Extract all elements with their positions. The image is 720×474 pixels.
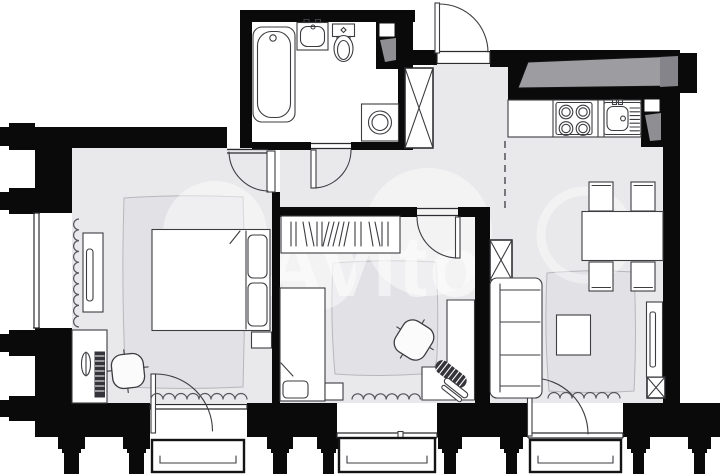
bed-double <box>152 230 270 331</box>
tv-unit <box>83 233 103 312</box>
entry-door <box>435 3 490 64</box>
door-swing-arc <box>440 4 489 52</box>
desk <box>72 330 107 403</box>
living-shaft <box>490 240 512 280</box>
column <box>500 437 523 474</box>
bathtub-icon <box>253 27 295 122</box>
balcony-1 <box>152 440 244 472</box>
pillow <box>248 235 267 278</box>
balcony-3 <box>530 440 621 472</box>
balcony-slab <box>152 440 244 472</box>
dining-chair <box>589 262 613 291</box>
door-frame <box>311 144 351 149</box>
kitchen-shaft-hatch <box>644 99 660 112</box>
pilaster <box>0 330 35 356</box>
toilet-icon <box>333 24 355 62</box>
tv-stand <box>647 302 663 377</box>
pilaster <box>0 396 35 421</box>
column <box>317 437 340 474</box>
column <box>688 437 711 474</box>
dining-chair <box>631 262 655 291</box>
drainboard-lines <box>630 108 640 131</box>
beam-end-cap <box>660 56 678 87</box>
balcony-2 <box>339 438 435 472</box>
wall-entry-jamb <box>413 50 437 65</box>
window-left <box>33 213 40 328</box>
column <box>438 437 462 474</box>
pillow <box>283 381 308 398</box>
wall-bedroom2-top-right <box>458 207 490 217</box>
pilaster <box>0 123 35 150</box>
bathroom-shaft-hatch <box>379 23 395 37</box>
wall-left-upper <box>35 127 72 213</box>
wall-bathroom-bottom-left <box>252 142 311 150</box>
wall-south-4 <box>623 403 720 437</box>
washing-machine-icon <box>362 104 399 141</box>
nightstand <box>325 383 343 400</box>
wall-south-2 <box>247 403 337 437</box>
wardrobe-open <box>281 216 400 253</box>
column <box>627 437 650 474</box>
dining-table <box>582 212 663 261</box>
wall-bedroom2-east <box>475 217 490 403</box>
wall-south-3 <box>437 403 528 437</box>
column <box>267 437 293 474</box>
balcony-slab <box>530 440 621 472</box>
nightstand <box>252 332 272 348</box>
sofa <box>490 278 542 398</box>
column <box>123 437 150 474</box>
door-leaf <box>151 374 156 433</box>
floor-plan-drawing: Avito <box>0 0 720 474</box>
corner-shaft <box>647 377 665 398</box>
dining-chair <box>589 182 613 211</box>
wall-partition-bedrooms <box>272 192 280 403</box>
wall-bathroom-right <box>398 10 413 68</box>
wall-bathroom-left <box>240 10 252 148</box>
coffee-table <box>557 315 591 355</box>
column <box>58 437 85 474</box>
balcony-slab <box>339 438 435 472</box>
wall-bathroom-bottom-right <box>351 142 413 150</box>
pilaster <box>0 188 35 214</box>
door-leaf <box>435 3 440 53</box>
balconies <box>152 438 621 472</box>
bed-single <box>280 288 325 401</box>
door-leaf <box>456 217 461 258</box>
door-frame <box>150 405 247 410</box>
pillow <box>248 283 267 326</box>
door-frame <box>437 52 490 64</box>
dining-chair <box>631 182 655 211</box>
floor-plan: Avito <box>0 0 720 474</box>
entry-shaft <box>405 68 433 148</box>
door-frame <box>528 433 623 438</box>
door-leaf <box>311 150 316 188</box>
door-leaf <box>267 151 275 192</box>
bathroom-sink-icon <box>297 20 328 51</box>
wall-south-1 <box>35 403 150 437</box>
pilasters <box>0 123 35 421</box>
wall-corner-protrusion <box>680 53 697 93</box>
